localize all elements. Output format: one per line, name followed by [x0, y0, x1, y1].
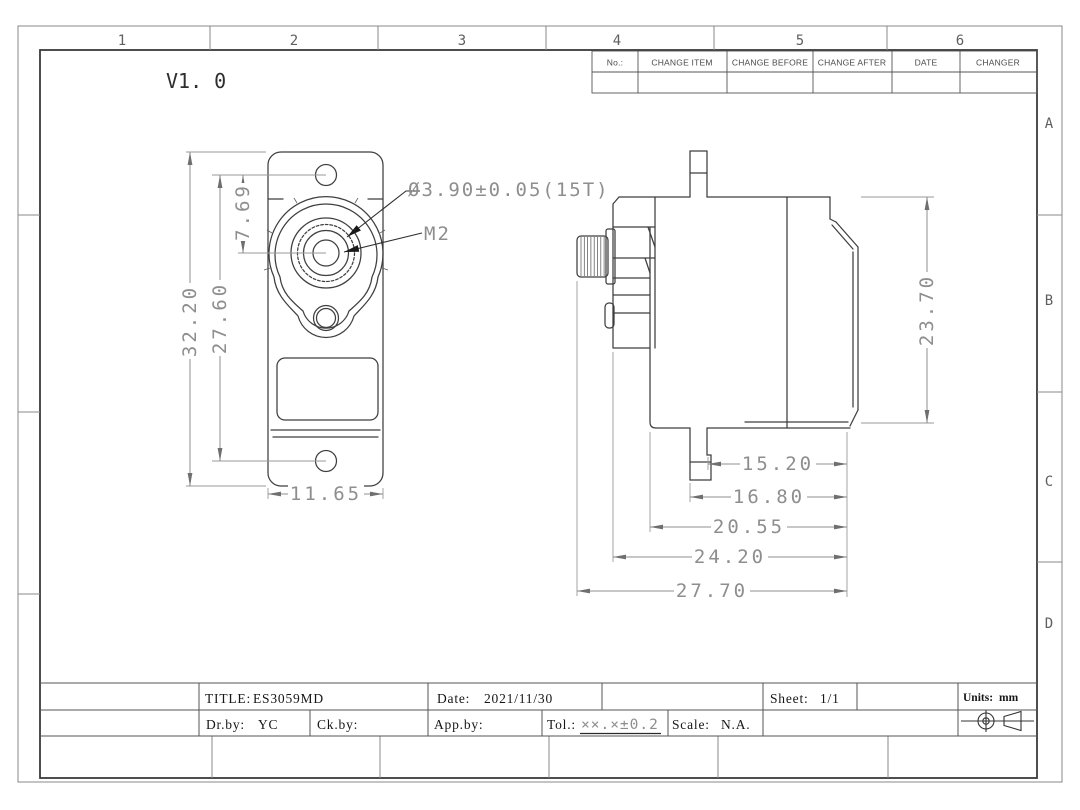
rev-col-no: No.:: [607, 58, 623, 68]
front-view-callouts: Ø3.90±0.05(15T) M2: [344, 179, 610, 252]
date-value: 2021/11/30: [484, 691, 553, 706]
title-value: ES3059MD: [253, 691, 324, 706]
label-plate: [277, 358, 378, 420]
side-view: 23.70 15.20 16.80 20.55 24.20 27.70: [577, 151, 938, 602]
spline-shaft: [577, 236, 608, 277]
scale-label: Scale:: [672, 717, 710, 732]
dim-overall-height: 32.20: [179, 285, 201, 357]
dim-shaft-offset: 7.69: [232, 183, 254, 241]
mount-flange-tab: [690, 151, 711, 480]
zone-row-c: C: [1045, 474, 1053, 490]
cad-drawing: 1 2 3 4 5 6 A B C D V1. 0 No.: CHANGE I: [0, 0, 1080, 810]
scale-value: N.A.: [721, 717, 750, 732]
mount-bracket-outline: [268, 152, 383, 486]
rev-col-change-after: CHANGE AFTER: [818, 58, 887, 68]
dim-width: 11.65: [290, 483, 362, 505]
front-view: 32.20 27.60 7.69 11.65 Ø3.90±0.05(15T) M…: [179, 152, 610, 505]
dim-chain-27-70: 27.70: [676, 580, 748, 602]
version-label: V1. 0: [166, 69, 226, 93]
zone-row-d: D: [1045, 616, 1053, 632]
bell-parting-ticks: [264, 198, 388, 270]
projection-symbol-icon: [961, 710, 1034, 732]
zone-col-6: 6: [956, 33, 964, 49]
secondary-boss-inner: [317, 309, 336, 328]
checked-by-label: Ck.by:: [317, 717, 358, 732]
sheet-label: Sheet:: [770, 691, 809, 706]
rev-col-change-item: CHANGE ITEM: [651, 58, 712, 68]
zone-col-2: 2: [290, 33, 298, 49]
zone-row-a: A: [1045, 116, 1054, 132]
revision-table: No.: CHANGE ITEM CHANGE BEFORE CHANGE AF…: [592, 51, 1037, 93]
sheet-frame: 1 2 3 4 5 6 A B C D: [18, 26, 1062, 782]
dim-chain-20-55: 20.55: [713, 516, 785, 538]
title-block: TITLE: ES3059MD Date: 2021/11/30 Sheet: …: [40, 683, 1037, 736]
secondary-boss-outer: [314, 306, 339, 331]
zone-col-4: 4: [613, 33, 621, 49]
side-view-geometry: [577, 151, 858, 480]
rev-col-date: DATE: [915, 58, 938, 68]
dim-body-height: 23.70: [916, 274, 938, 346]
title-block-texts: TITLE: ES3059MD Date: 2021/11/30 Sheet: …: [205, 691, 1019, 734]
rev-col-changer: CHANGER: [976, 58, 1020, 68]
sheet-value: 1/1: [820, 691, 840, 706]
rev-col-change-before: CHANGE BEFORE: [732, 58, 808, 68]
screw-callout: M2: [424, 223, 451, 245]
dim-hole-span: 27.60: [209, 282, 231, 354]
drawing-sheet: 1 2 3 4 5 6 A B C D V1. 0 No.: CHANGE I: [0, 0, 1080, 810]
spline-callout: Ø3.90±0.05(15T): [408, 179, 610, 201]
zone-ticks: [18, 26, 1062, 778]
units-label: Units:: [963, 692, 993, 704]
zone-col-5: 5: [796, 33, 804, 49]
approved-by-label: App.by:: [434, 717, 483, 732]
front-view-geometry: [264, 152, 388, 486]
zone-col-1: 1: [118, 33, 126, 49]
dim-chain-24-20: 24.20: [694, 546, 766, 568]
title-label: TITLE:: [205, 691, 251, 706]
zone-row-b: B: [1045, 293, 1053, 309]
dim-chain-15-20: 15.20: [742, 453, 814, 475]
tolerance-value: ××.×±0.2: [581, 717, 659, 733]
front-view-dimensions: 32.20 27.60 7.69 11.65: [179, 152, 383, 505]
drawn-by-value: YC: [258, 717, 278, 732]
units-value: mm: [999, 692, 1019, 704]
bracket-step-lines: [268, 199, 383, 437]
outer-border: [18, 26, 1062, 782]
spline-teeth-hatch: [581, 237, 604, 276]
drawn-by-label: Dr.by:: [206, 717, 245, 732]
zone-row-labels: A B C D: [1045, 116, 1054, 632]
zone-column-labels: 1 2 3 4 5 6: [118, 33, 964, 49]
dim-chain-16-80: 16.80: [733, 486, 805, 508]
date-label: Date:: [437, 691, 470, 706]
zone-col-3: 3: [458, 33, 466, 49]
tolerance-label: Tol.:: [547, 717, 576, 732]
gearhead-outline: [613, 197, 656, 428]
